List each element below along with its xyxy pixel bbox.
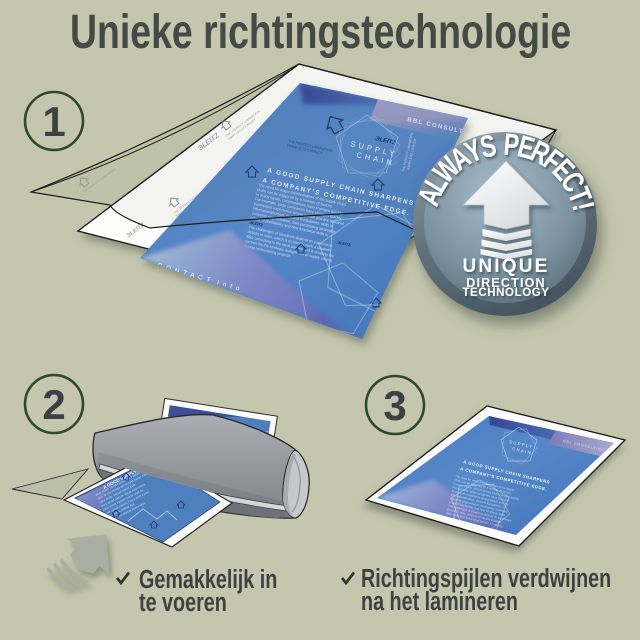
svg-text:na het lamineren: na het lamineren (361, 586, 518, 615)
svg-text:Unieke richtingstechnologie: Unieke richtingstechnologie (70, 6, 571, 60)
svg-text:UNIQUE: UNIQUE (462, 256, 549, 277)
svg-text:TECHNOLOGY: TECHNOLOGY (462, 287, 549, 299)
svg-text:3: 3 (383, 382, 406, 429)
svg-text:te voeren: te voeren (139, 587, 227, 616)
svg-text:2: 2 (42, 381, 65, 428)
svg-text:1: 1 (42, 98, 65, 145)
